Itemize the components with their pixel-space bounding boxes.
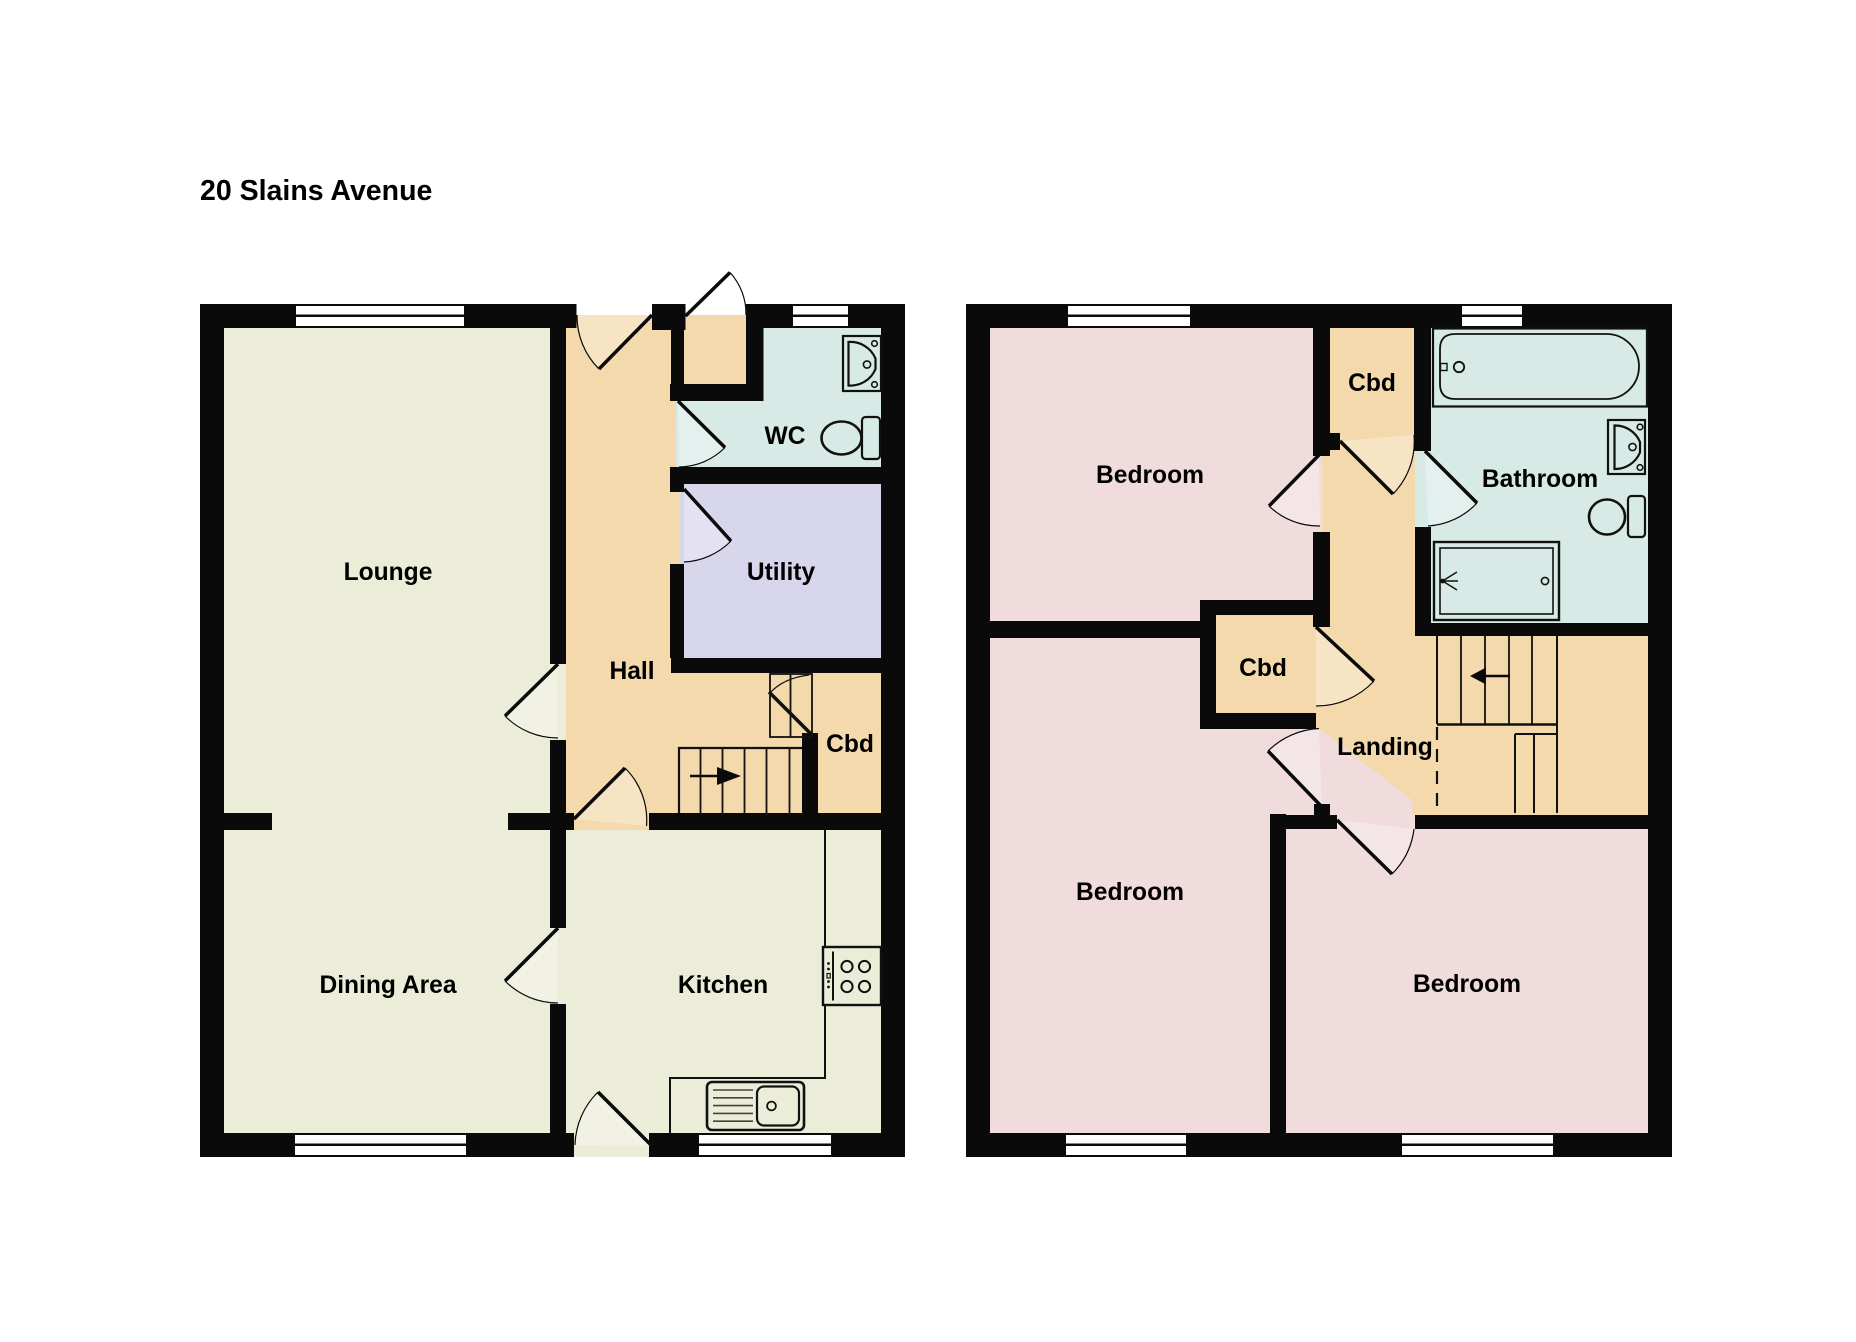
svg-text:Utility: Utility (747, 559, 816, 586)
svg-text:Bedroom: Bedroom (1076, 879, 1184, 906)
svg-text:20 Slains Avenue: 20 Slains Avenue (200, 175, 432, 207)
svg-text:Bathroom: Bathroom (1482, 466, 1598, 493)
svg-text:Kitchen: Kitchen (678, 972, 768, 999)
svg-text:Hall: Hall (609, 658, 654, 685)
svg-text:Dining Area: Dining Area (319, 972, 456, 999)
svg-text:Lounge: Lounge (344, 559, 433, 586)
svg-text:Cbd: Cbd (1348, 370, 1396, 397)
svg-text:Bedroom: Bedroom (1096, 462, 1204, 489)
svg-text:Bedroom: Bedroom (1413, 971, 1521, 998)
svg-text:Landing: Landing (1337, 734, 1433, 761)
svg-text:Cbd: Cbd (826, 731, 874, 758)
svg-text:WC: WC (765, 423, 806, 450)
svg-text:Cbd: Cbd (1239, 655, 1287, 682)
